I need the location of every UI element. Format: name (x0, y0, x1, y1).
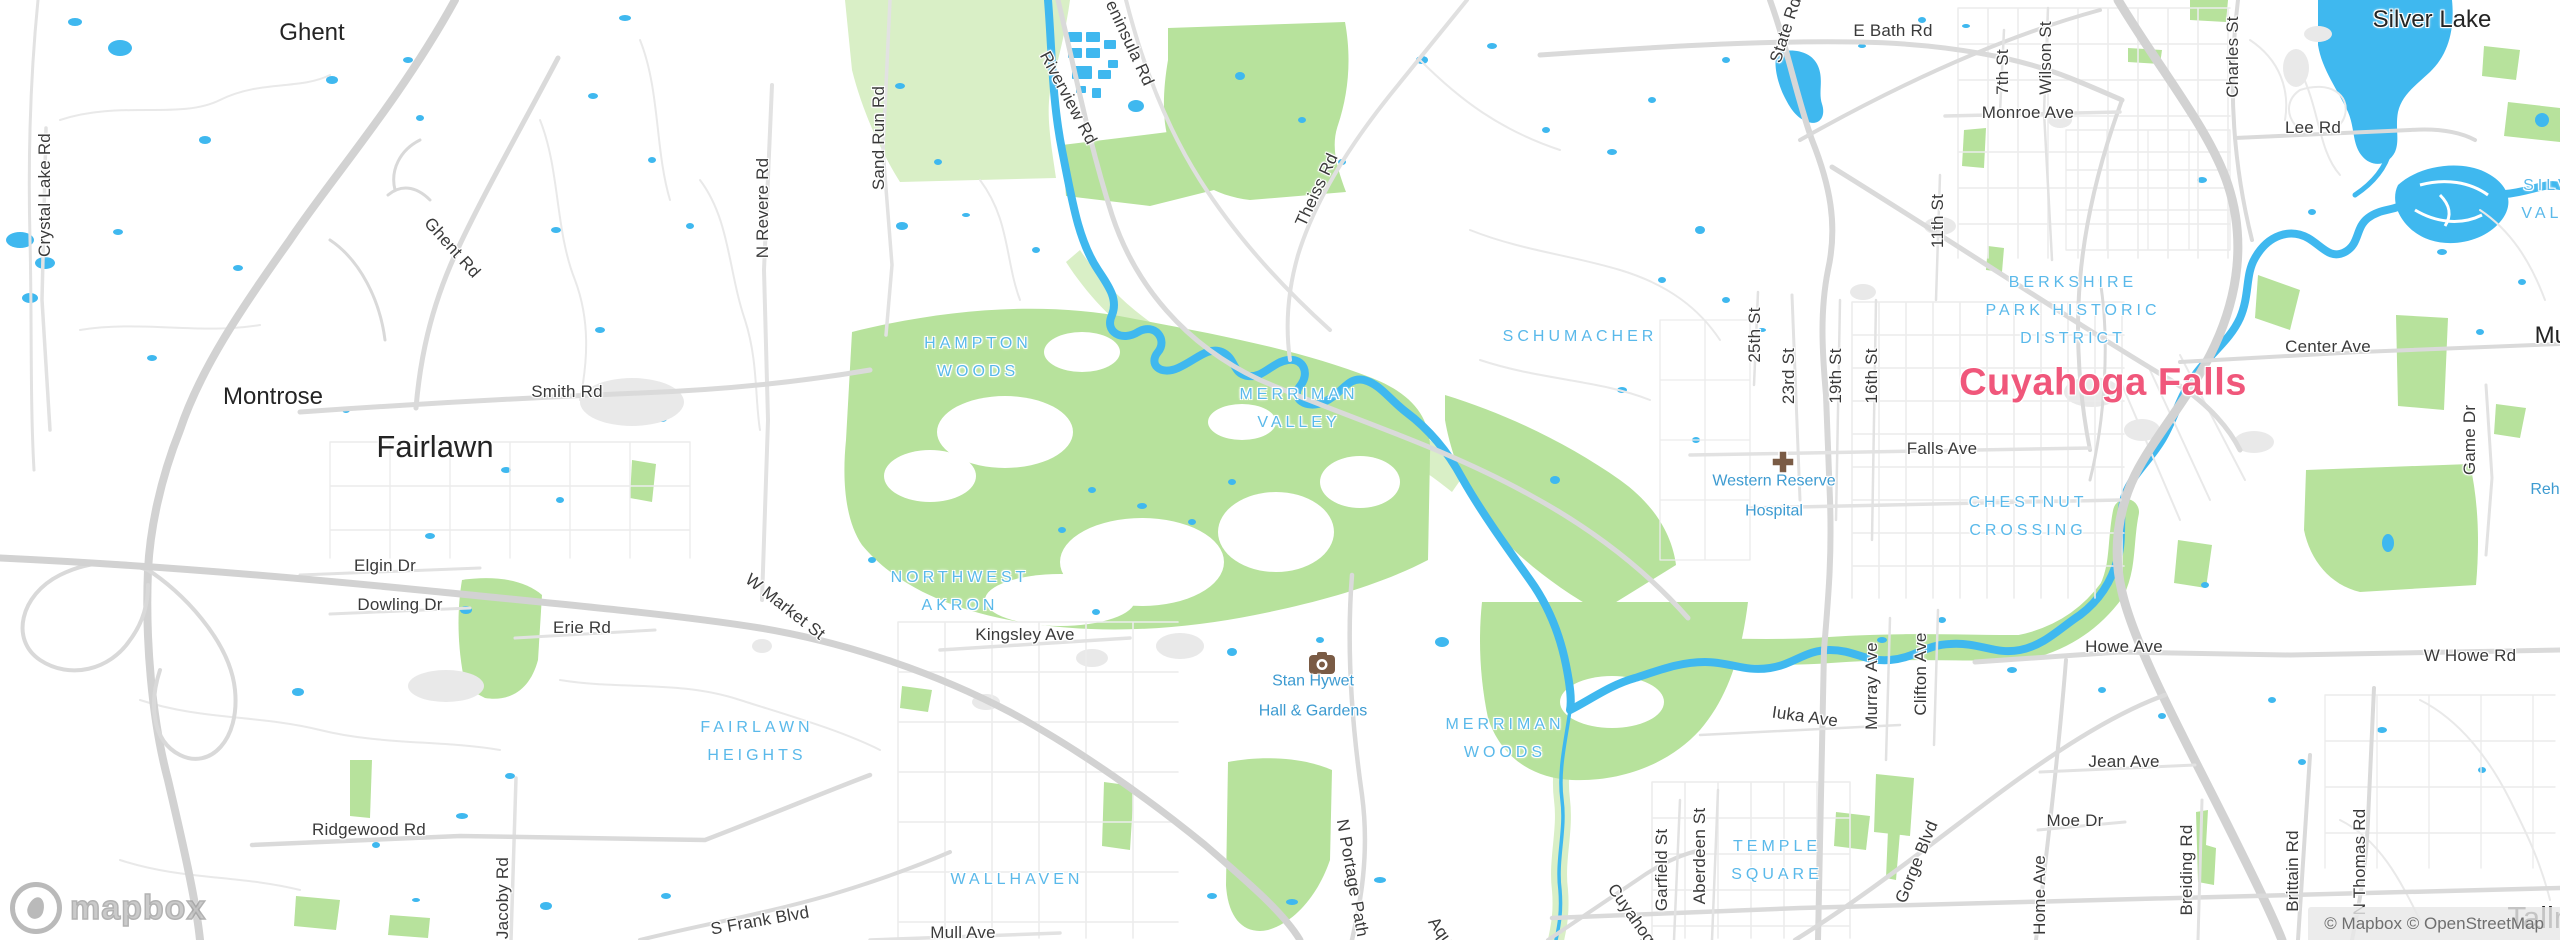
attribution-bar[interactable]: © Mapbox © OpenStreetMap (2308, 907, 2560, 940)
park-areas (294, 0, 2560, 940)
map-canvas[interactable]: Ghent Montrose Fairlawn Silver Lake Tall… (0, 0, 2560, 940)
map-base (0, 0, 2560, 940)
mapbox-wordmark: mapbox (70, 889, 206, 928)
mapbox-pin-icon (10, 882, 62, 934)
mapbox-logo[interactable]: mapbox (10, 882, 206, 934)
attribution-text: © Mapbox © OpenStreetMap (2324, 914, 2544, 934)
